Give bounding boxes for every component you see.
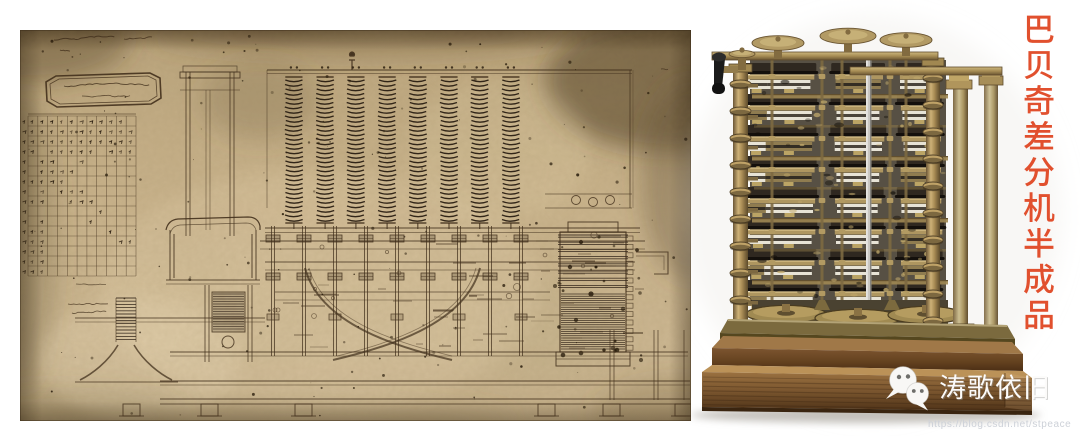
svg-text:https://blog.csdn.net/stpeace: https://blog.csdn.net/stpeace: [928, 419, 1071, 430]
